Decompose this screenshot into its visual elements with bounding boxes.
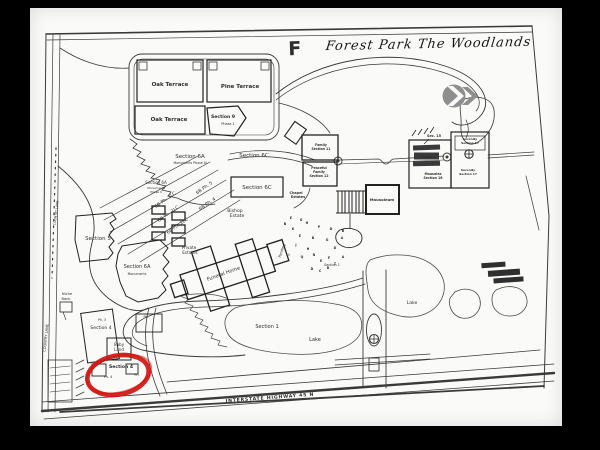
- map-line: [413, 161, 440, 166]
- map-line: [285, 121, 307, 144]
- niche-bank-line1: Niche: [62, 292, 73, 296]
- map-line: [146, 308, 167, 396]
- sec-15: Sec. 15: [427, 134, 442, 138]
- plot-letter: K: [292, 227, 295, 231]
- country-lane-lower: COUNTRY LANE: [43, 323, 50, 352]
- map-line: [136, 314, 162, 332]
- section-9-block: [207, 106, 246, 136]
- plot-letter: I: [288, 253, 289, 257]
- map-line: [338, 191, 342, 213]
- boundary-left: [42, 34, 46, 412]
- plot-letter-labels: EBGKHPDBEBGAJHDIQNEFATDCB: [284, 216, 345, 273]
- map-line: [129, 54, 279, 140]
- map-line: [261, 62, 269, 70]
- section-6a-phase3: Section 6A: [175, 154, 205, 160]
- plot-letter: D: [311, 267, 314, 271]
- pine-terrace-block: [207, 60, 271, 102]
- map-line: [526, 176, 539, 230]
- lake-1-outline: [225, 301, 362, 355]
- section-6c-box: Section 6C: [242, 185, 272, 191]
- plot-letter: D: [334, 246, 337, 250]
- ph-4: Ph. 4: [104, 375, 113, 379]
- bishop-estate-line2: Estate: [230, 213, 245, 219]
- plaza: Plaza: [421, 155, 432, 159]
- map-title: Forest Park The Woodlands: [324, 35, 532, 54]
- map-svg: Forest Park The Woodlands F Oak TerraceP…: [30, 8, 562, 426]
- section-1: Section 1: [255, 324, 278, 330]
- niche-bank-line2: Bank: [61, 297, 71, 301]
- family-section-12-line3: Section 12: [310, 174, 329, 178]
- map-line: [134, 59, 274, 135]
- section-6a-phase2: Section 6A: [145, 180, 167, 185]
- family-section-11-line2: Section 11: [312, 147, 331, 151]
- 6b-ph-5: 6B Ph. 5: [195, 180, 214, 196]
- plot-letter: G: [326, 238, 329, 242]
- map-line: [267, 240, 289, 266]
- plot-letter: E: [290, 216, 292, 220]
- map-line: [481, 262, 505, 269]
- scan-frame: Forest Park The Woodlands F Oak TerraceP…: [0, 0, 600, 450]
- map-line: [180, 296, 227, 347]
- map-line: [488, 152, 534, 158]
- plot-letter: N: [313, 253, 316, 257]
- lake-1: Lake: [309, 337, 321, 343]
- map-line: [466, 120, 468, 138]
- map-line: [44, 381, 554, 419]
- map-line: [100, 156, 240, 262]
- section-6a-phase3-sub: Monuments Phase III: [173, 161, 206, 165]
- funeral-home: Funeral Home: [206, 265, 241, 283]
- map-line: [76, 360, 84, 396]
- section-6a-monuments-sub: Monuments: [128, 272, 147, 276]
- marker-f-annotation: F: [288, 38, 302, 60]
- plot-letter: J: [294, 243, 296, 247]
- plot-letter: A: [342, 255, 345, 259]
- plot-letter: P: [318, 225, 321, 229]
- map-line: [493, 276, 523, 283]
- ph-upper-right: Ph.: [144, 315, 149, 319]
- map-line: [193, 62, 201, 70]
- plot-letter: D: [330, 227, 333, 231]
- lake-2: Lake: [407, 300, 418, 306]
- section-4-upper: Section 4: [90, 325, 112, 331]
- serenity-17-bot-line2: Section 17: [459, 172, 477, 176]
- section-6a-monuments: Section 6A: [124, 264, 151, 270]
- serenity-17-top-line2: Section 17: [461, 141, 479, 145]
- map-line: [336, 191, 365, 213]
- map-line: [450, 289, 481, 318]
- plot-letter: H: [306, 221, 309, 225]
- plot-letter: B: [284, 222, 287, 226]
- map-line: [50, 366, 70, 392]
- boundary-top: [46, 26, 532, 34]
- map-line: [492, 287, 527, 316]
- ph-circled-right: Ph.: [134, 373, 139, 377]
- oak-terrace-1: Oak Terrace: [152, 82, 189, 88]
- country-lane-upper: COUNTRY LANE: [53, 200, 60, 225]
- map-line: [60, 48, 129, 68]
- map-line: [63, 312, 66, 320]
- oak-terrace-2: Oak Terrace: [151, 117, 188, 123]
- niche-bank-block: [60, 302, 72, 312]
- pine-terrace: Pine Terrace: [221, 84, 260, 90]
- red-highlight-circle: [82, 348, 155, 400]
- map-line: [359, 191, 363, 213]
- section-4-circled: Section 4: [109, 364, 133, 370]
- boundary-right: [532, 26, 549, 388]
- mausolea-16-line2: Section 16: [424, 176, 444, 180]
- plot-letter: B: [342, 229, 345, 233]
- baby-land-line2: Land: [114, 347, 124, 352]
- plot-letter: H: [307, 247, 310, 251]
- ph-3: Ph. 3: [98, 318, 106, 322]
- entrance-road: [335, 270, 430, 388]
- map-line: [446, 156, 448, 158]
- map-line: [285, 121, 307, 144]
- interstate-highway-road: [42, 364, 554, 419]
- scanned-map-page: Forest Park The Woodlands F Oak TerraceP…: [30, 8, 562, 426]
- map-line: [352, 191, 356, 213]
- plot-letter: B: [312, 236, 315, 240]
- plot-letter: C: [319, 269, 322, 273]
- chapel-estates-line2: Estates: [291, 195, 305, 199]
- section-5: Section 5: [85, 236, 111, 242]
- section-9: Section 9: [211, 114, 235, 120]
- lake-2-outline: [366, 255, 444, 317]
- map-line: [345, 191, 349, 213]
- plot-letter: Q: [301, 255, 304, 259]
- section-9-phase-1: Phase 1: [221, 122, 234, 126]
- plot-letter: E: [320, 259, 322, 263]
- illegible-label-smudges: [481, 260, 523, 284]
- map-line: [336, 228, 362, 247]
- map-line: [209, 62, 217, 70]
- map-line: [132, 284, 365, 346]
- plot-letter: F: [328, 256, 330, 260]
- map-line: [413, 145, 440, 151]
- section-6c-strip: Section 6C: [239, 153, 269, 159]
- plot-letter: G: [300, 218, 303, 222]
- mausoleum: Mausoleum: [370, 197, 394, 202]
- forest-park-logo-icon: [443, 85, 479, 108]
- mausoleum-building: [336, 185, 399, 248]
- plot-letter: E: [299, 234, 301, 238]
- private-estates-line2: Estates: [182, 250, 197, 255]
- plot-letter: A: [341, 236, 344, 240]
- section-6a-phase2-sub2: Phase II: [150, 190, 162, 194]
- map-line: [488, 269, 520, 277]
- map-line: [139, 62, 147, 70]
